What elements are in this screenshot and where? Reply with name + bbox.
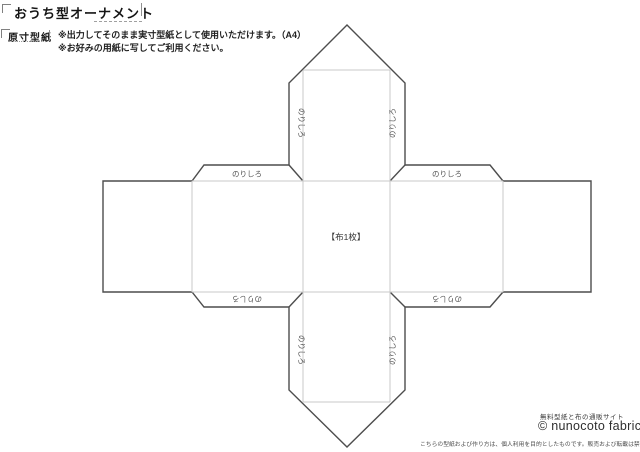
glue-tab-label-top-left-arm: のりしろ — [232, 170, 262, 179]
nunocoto-fabric-logo: © nunocoto fabric — [538, 419, 640, 433]
tab-separator-top-left — [289, 165, 303, 181]
pattern-sheet-page: おうち型オーナメント 原寸型紙 ※出力してそのまま実寸型紙として使用いただけます… — [0, 0, 640, 452]
glue-tab-label-bottom-right-arm: のりしろ — [432, 295, 462, 304]
copyright-disclaimer: こちらの型紙および作り方は、個人利用を目的としたものです。販売および転載は禁止し… — [420, 439, 638, 448]
glue-tab-label-bottom-face-left: のりしろ — [297, 335, 306, 365]
tab-separator-bottom-right — [390, 292, 405, 307]
glue-tab-label-top-right-arm: のりしろ — [432, 170, 462, 179]
glue-tab-label-roof-right: のりしろ — [388, 108, 397, 138]
house-pattern-net-drawing: のりしろ のりしろ のりしろ のりしろ のりしろ のりしろ のりしろ のりしろ … — [0, 0, 640, 452]
tab-separator-bottom-left — [289, 292, 303, 307]
glue-tab-label-roof-left: のりしろ — [297, 108, 306, 138]
tab-separator-top-right — [390, 165, 405, 181]
fabric-count-label: 【布1枚】 — [327, 232, 366, 242]
glue-tab-label-bottom-left-arm: のりしろ — [232, 295, 262, 304]
glue-tab-label-bottom-face-right: のりしろ — [388, 335, 397, 365]
